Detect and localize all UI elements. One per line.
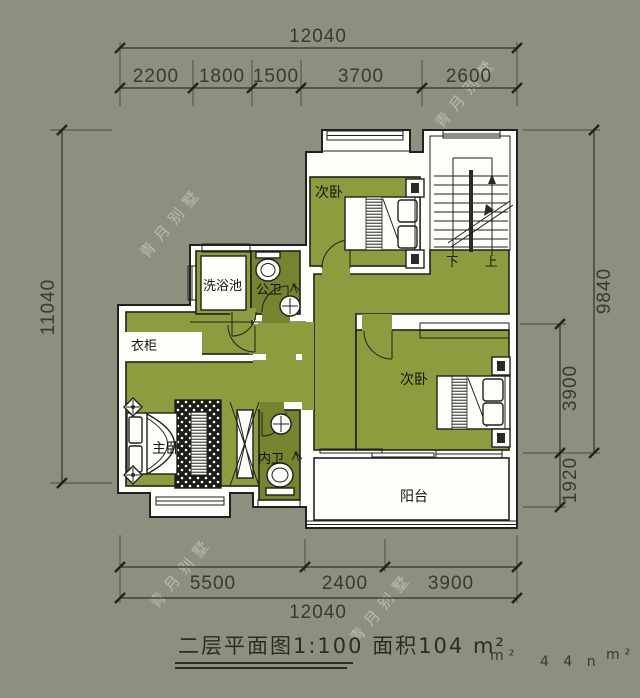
bed-blanket <box>366 197 382 250</box>
toilet-icon <box>266 463 294 495</box>
wardrobe-label: 衣柜 <box>131 338 157 354</box>
title-fragment: 4 4 n <box>540 654 601 670</box>
sink-icon <box>280 296 300 316</box>
bedroom-right-label: 次卧 <box>400 372 428 388</box>
dim-bottom-seg: 5500 <box>190 573 236 594</box>
dim-top-seg: 1500 <box>253 66 299 87</box>
door-opening <box>322 262 350 278</box>
title-fragment: m² <box>490 648 519 664</box>
master-bedroom-label: 主卧 <box>152 441 180 457</box>
nightstand <box>492 429 510 447</box>
floor-plan-drawing: 青月别墅 青月别墅 青月别墅 青月别墅 青月别墅 青月别墅 <box>0 0 640 698</box>
dim-bottom-total: 12040 <box>289 602 347 623</box>
door-opening <box>266 346 296 366</box>
bed-pillow <box>398 226 417 248</box>
nightstand <box>492 357 510 375</box>
door-opening <box>362 314 392 332</box>
double-bed <box>437 376 510 429</box>
title-underline <box>175 662 353 664</box>
balcony-label: 阳台 <box>400 489 428 505</box>
dim-right-total: 9840 <box>594 268 615 314</box>
rug-runner <box>191 412 207 475</box>
nightstand <box>406 179 424 197</box>
bedroom-top-label: 次卧 <box>315 185 343 201</box>
dim-top-total: 12040 <box>289 26 347 47</box>
dim-top-seg: 3700 <box>338 66 384 87</box>
hall-alcove-floor <box>302 324 314 410</box>
stair-down-label: 下 <box>446 254 459 269</box>
dim-bottom-seg: 3900 <box>428 573 474 594</box>
plan-title: 二层平面图1:100 面积104 m² <box>178 634 506 658</box>
nightstand <box>406 250 424 268</box>
door-opening <box>260 402 284 412</box>
bed-pillow <box>483 379 503 401</box>
dim-left-total: 11040 <box>38 279 59 335</box>
dim-right-seg: 1920 <box>560 457 581 503</box>
bed-pillow <box>129 417 142 443</box>
stair-up-label: 上 <box>485 254 498 269</box>
stair-stringer <box>469 170 473 252</box>
bed-pillow <box>483 403 503 425</box>
wash-pool-label: 洗浴池 <box>203 279 242 294</box>
dressing-area-floor <box>253 360 306 402</box>
inner-bath-label: 内卫 <box>258 451 284 467</box>
toilet-icon <box>256 252 280 281</box>
bed-blanket <box>452 376 467 429</box>
floor-plan-page: 青月别墅 青月别墅 青月别墅 青月别墅 青月别墅 青月别墅 <box>0 0 640 698</box>
dim-top-seg: 1800 <box>199 66 245 87</box>
title-fragment: m² <box>606 647 635 663</box>
double-bed <box>345 197 420 250</box>
dim-right-seg: 3900 <box>560 365 581 411</box>
sink-icon <box>271 414 291 434</box>
dim-top-seg: 2200 <box>133 66 179 87</box>
dim-top-seg: 2600 <box>446 66 492 87</box>
bed-pillow <box>398 200 417 222</box>
wardrobe-corridor: 衣柜 <box>122 332 202 355</box>
title-underline <box>175 667 347 669</box>
public-bath-label: 公卫 <box>256 283 282 298</box>
dim-bottom-seg: 2400 <box>322 573 368 594</box>
